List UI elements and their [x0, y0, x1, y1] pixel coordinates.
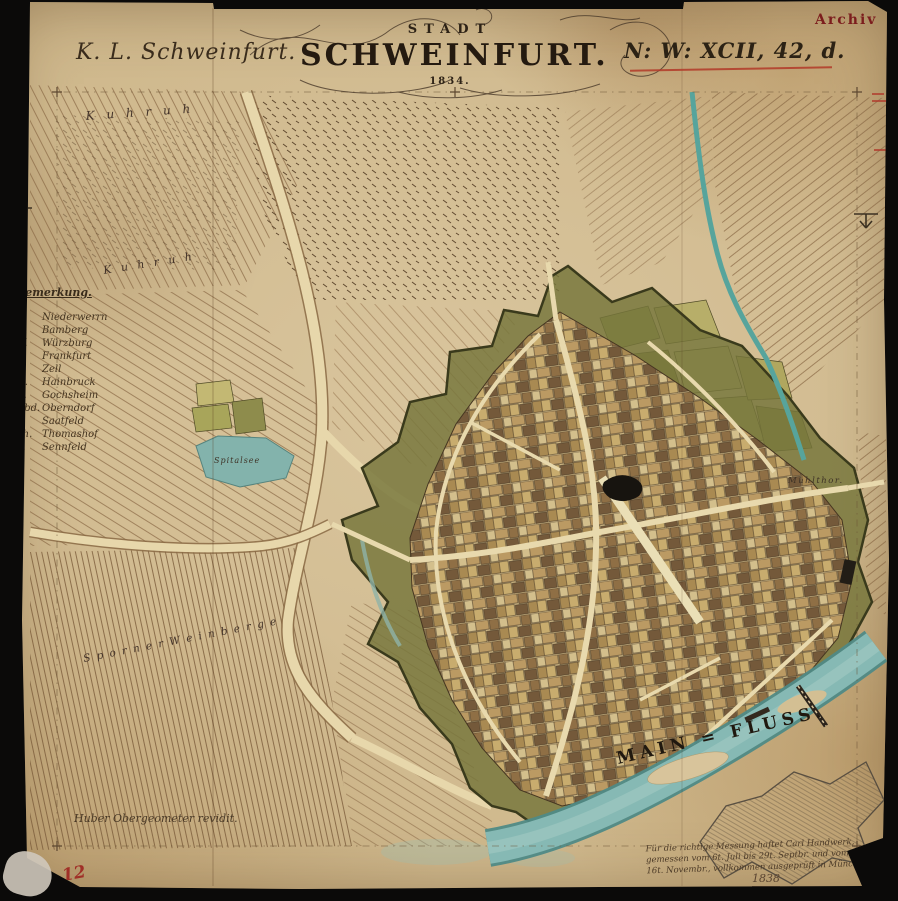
- archive-code: N: W: XCII, 42, d.: [624, 38, 845, 63]
- water-stain: [381, 839, 491, 865]
- legend-abbr: G.: [16, 389, 42, 402]
- legend-name: Würzburg: [42, 337, 92, 350]
- legend-entry: W.Würzburg: [16, 337, 156, 350]
- legend-entry: B.Bamberg: [16, 324, 156, 337]
- sheet-title-left: K. L. Schweinfurt.: [76, 40, 296, 65]
- legend-entry: G.Gochsheim: [16, 389, 156, 402]
- legend-abbr: W.: [16, 337, 42, 350]
- vineyard-southwest: [30, 548, 352, 850]
- legend-entry: S.Saatfeld: [16, 415, 156, 428]
- cartouche-name: SCHWEINFURT.: [300, 38, 600, 73]
- legend-entry: N.Niederwerrn: [16, 311, 156, 324]
- legend-entry: Obd.Oberndorf: [16, 402, 156, 415]
- legend-abbr: B.: [16, 324, 42, 337]
- map-sheet: K u h r u h K u h r u h Spitalsee Mühlth…: [0, 0, 898, 900]
- certification-year: 1838: [752, 872, 780, 887]
- scan-background: K u h r u h K u h r u h Spitalsee Mühlth…: [0, 0, 898, 900]
- label-muehlthor: Mühlthor.: [787, 476, 844, 486]
- legend-abbr: Th.: [16, 428, 42, 441]
- archiv-stamp: Archiv: [815, 12, 877, 28]
- legend: Bemerkung. N.Niederwerrn B.Bamberg W.Wür…: [16, 286, 156, 454]
- legend-name: Bamberg: [42, 324, 88, 337]
- cartouche-stadt: STADT: [300, 22, 600, 37]
- title-cartouche: STADT SCHWEINFURT. 1834.: [300, 22, 600, 87]
- legend-name: Saatfeld: [42, 415, 84, 428]
- legend-name: Gochsheim: [42, 389, 98, 402]
- legend-name: Sennfeld: [42, 441, 87, 454]
- legend-entry: S.Sennfeld: [16, 441, 156, 454]
- legend-abbr: F.: [16, 350, 42, 363]
- surveyor-note: Huber Obergeometer revidit.: [74, 812, 238, 825]
- legend-entry: Z.Zell: [16, 363, 156, 376]
- legend-entry: F.Frankfurt: [16, 350, 156, 363]
- legend-abbr: S.: [16, 415, 42, 428]
- cartouche-year: 1834.: [300, 76, 600, 87]
- legend-name: Niederwerrn: [42, 311, 107, 324]
- legend-title: Bemerkung.: [16, 286, 156, 299]
- legend-entry: H.Hainbruck: [16, 376, 156, 389]
- legend-name: Oberndorf: [42, 402, 95, 415]
- sheet-number: 12: [60, 862, 87, 886]
- survey-mark-left: [8, 208, 32, 222]
- legend-name: Hainbruck: [42, 376, 96, 389]
- legend-abbr: N.: [16, 311, 42, 324]
- legend-abbr: Z.: [16, 363, 42, 376]
- legend-abbr: S.: [16, 441, 42, 454]
- label-spitalsee: Spitalsee: [214, 456, 260, 465]
- legend-name: Thomashof: [42, 428, 98, 441]
- legend-entry: Th.Thomashof: [16, 428, 156, 441]
- legend-name: Frankfurt: [42, 350, 91, 363]
- legend-name: Zell: [42, 363, 61, 376]
- legend-abbr: H.: [16, 376, 42, 389]
- legend-abbr: Obd.: [16, 402, 42, 415]
